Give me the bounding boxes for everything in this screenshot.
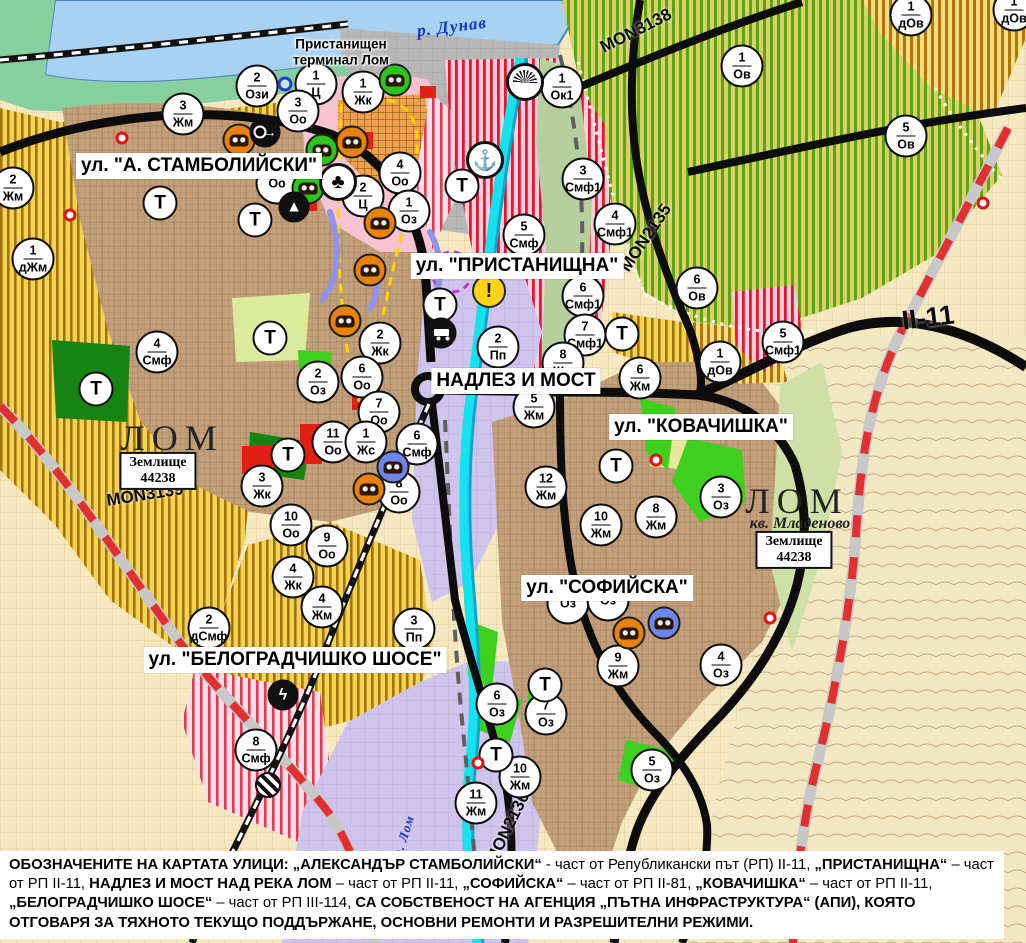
legend-segment: „ПРИСТАНИЩНА“: [815, 857, 948, 873]
legend-segment: – част от РП II-81,: [563, 876, 695, 892]
legend-segment: „КОВАЧИШКА“: [695, 876, 805, 892]
legend-segment: „БЕЛОГРАДЧИШКО ШОСЕ“: [9, 895, 212, 911]
legend-segment: – част от РП II-11,: [332, 876, 463, 892]
zoning-map: 2 Жм 3 Жм 2 Ози 1 Ц 3 Оо 1 Жк 4 Оо: [0, 0, 1026, 943]
legend-segment: - част от Републикански път (РП) II-11,: [542, 857, 815, 873]
land-plot-box-east: Землище 44238: [755, 531, 832, 569]
legend-text-block: ОБОЗНАЧЕНИТЕ НА КАРТАТА УЛИЦИ: „АЛЕКСАНД…: [0, 851, 1004, 939]
port-terminal-label: Пристанищен терминал Лом: [293, 36, 389, 67]
legend-segment: НАДЛЕЗ И МОСТ НАД РЕКА ЛОМ: [89, 876, 332, 892]
legend-segment: – част от РП II-11,: [806, 876, 933, 892]
land-plot-box-west: Землище 44238: [119, 452, 196, 490]
legend-segment: ОБОЗНАЧЕНИТЕ НА КАРТАТА УЛИЦИ: „АЛЕКСАНД…: [9, 857, 542, 873]
legend-segment: „СОФИЙСКА“: [462, 876, 563, 892]
legend-segment: – част от РП III-114,: [212, 895, 355, 911]
